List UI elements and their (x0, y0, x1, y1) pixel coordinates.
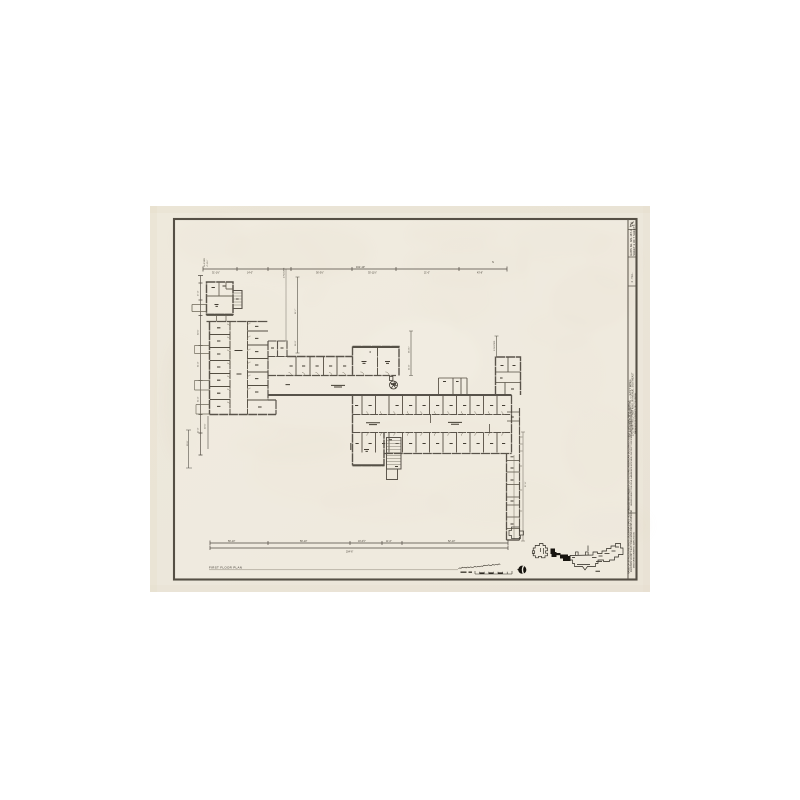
svg-text:34'-0": 34'-0" (197, 396, 199, 402)
svg-text:11'-6": 11'-6" (386, 541, 392, 543)
svg-text:4 .TEL.: 4 .TEL. (630, 272, 634, 282)
svg-text:NAME OF STRUCTURE: EAST LOUISI: NAME OF STRUCTURE: EAST LOUISIANA STATE … (628, 488, 631, 574)
svg-text:4 FLOORS: 4 FLOORS (283, 267, 285, 278)
svg-text:59'-10": 59'-10" (300, 541, 307, 543)
svg-text:MEASURED DRAWING MARCH 1936: MEASURED DRAWING MARCH 1936 (633, 531, 636, 568)
svg-text:43'-8": 43'-8" (477, 273, 483, 275)
svg-text:21'-0": 21'-0" (424, 273, 430, 275)
svg-text:22'-0": 22'-0" (197, 427, 199, 433)
svg-text:30'-6": 30'-6" (197, 329, 199, 335)
svg-text:N: N (492, 260, 494, 264)
svg-text:SHEET 3 OF 7 SHEETS: SHEET 3 OF 7 SHEETS (632, 224, 636, 255)
svg-text:27'-0": 27'-0" (197, 290, 199, 296)
svg-text:14'-8": 14'-8" (408, 364, 410, 370)
svg-text:204'-6": 204'-6" (346, 551, 353, 553)
svg-text:57'-6": 57'-6" (525, 481, 527, 487)
svg-text:2 FLOORS: 2 FLOORS (494, 340, 496, 351)
svg-text:N 4°58'E: N 4°58'E (204, 257, 206, 266)
svg-text:10'-6": 10'-6" (204, 423, 206, 429)
svg-text:161'-10": 161'-10" (356, 266, 365, 269)
svg-text:FIRST FLOOR PLAN: FIRST FLOOR PLAN (209, 566, 242, 570)
svg-text:59'-10": 59'-10" (228, 541, 235, 543)
svg-text:34'-0": 34'-0" (197, 361, 199, 367)
svg-text:14'-0": 14'-0" (247, 273, 253, 275)
svg-text:52'-10": 52'-10" (448, 541, 455, 543)
svg-text:WASHINGTON DISTRICT OF COLUMB: WASHINGTON DISTRICT OF COLUMBIA (634, 393, 637, 434)
svg-text:16'-3": 16'-3" (295, 340, 297, 346)
svg-text:32'-7": 32'-7" (295, 308, 297, 314)
